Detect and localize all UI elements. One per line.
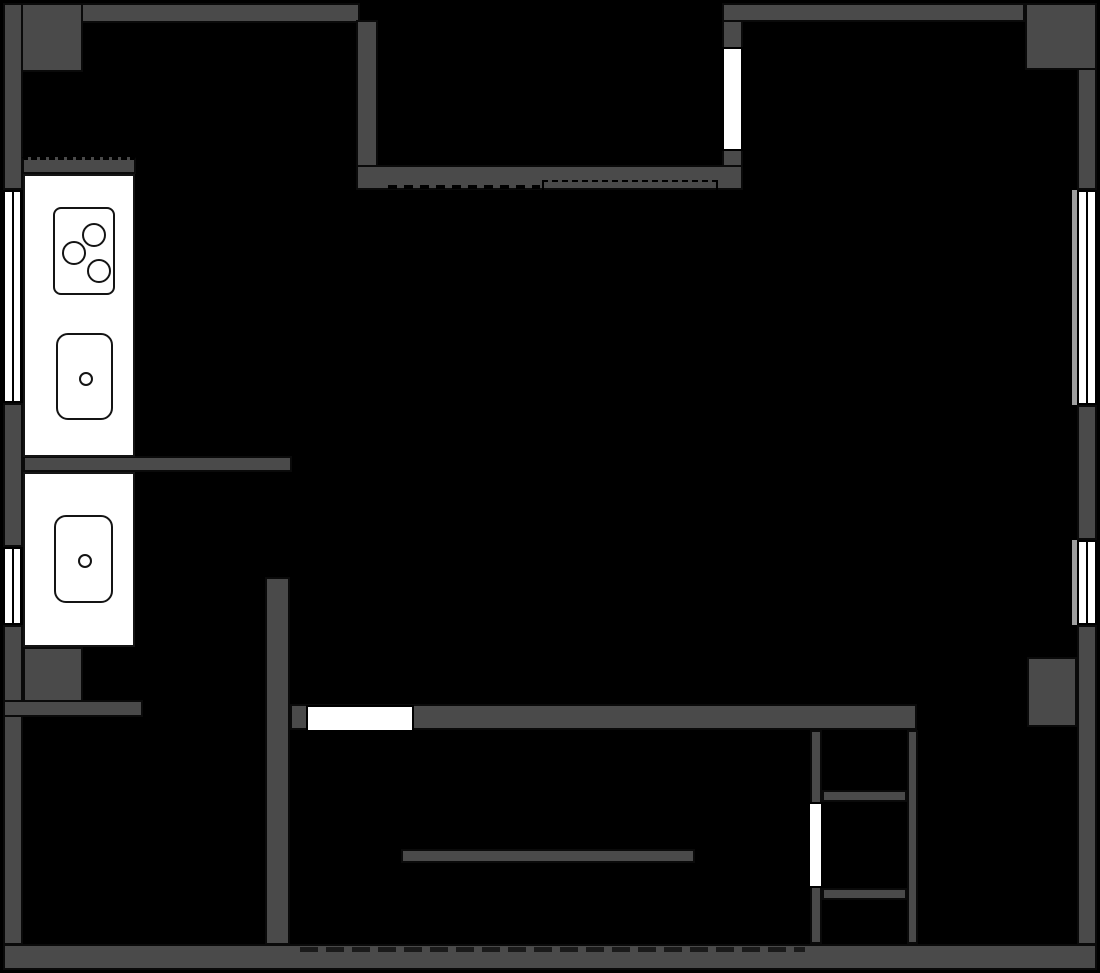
bottom-wall-dashed-line [300, 947, 805, 952]
right-window-upper-pane-divider [1086, 192, 1088, 403]
right-window-lower-pane-divider [1086, 542, 1088, 623]
kitchen-sink-upper [56, 333, 113, 420]
stove [53, 207, 115, 295]
recess-left-wall [356, 20, 378, 167]
right-window-lower [1077, 540, 1097, 625]
left-wall-lower [3, 625, 23, 945]
sink-drain [79, 372, 93, 386]
burner [62, 241, 86, 265]
sink-drain [78, 554, 92, 568]
left-wall-upper [3, 3, 23, 190]
kitchen-partition-stub [23, 456, 292, 472]
top-window [722, 47, 743, 151]
apartment-floor-plan [0, 0, 1100, 973]
top-wall-right [722, 3, 1025, 22]
hall-door-opening [306, 705, 414, 732]
left-window-lower-pane-divider [12, 549, 14, 623]
kitchen-sink-lower [54, 515, 113, 603]
left-window-lower [3, 547, 22, 625]
wardrobe-dashed-outline [542, 180, 718, 192]
closet-divider-lower [822, 888, 907, 900]
counter-backsplash [22, 157, 136, 174]
table-bar [401, 849, 695, 863]
right-wall-upper [1077, 68, 1097, 190]
right-wall-lower [1077, 625, 1097, 945]
right-wall-bump [1027, 657, 1077, 727]
left-window-upper-pane-divider [12, 192, 14, 401]
closet-divider-upper [822, 790, 907, 802]
recess-dashed-line [388, 185, 540, 189]
central-divider-wall [265, 577, 290, 945]
burner [82, 223, 106, 247]
right-window-upper [1077, 190, 1097, 405]
closet-door-opening [808, 802, 823, 888]
right-wall-middle [1077, 405, 1097, 540]
left-window-upper [3, 190, 22, 403]
lower-left-room-top-wall [3, 700, 143, 717]
closet-right-wall [907, 730, 918, 944]
left-wall-middle [3, 403, 23, 547]
top-right-corner-block [1025, 3, 1097, 70]
burner [87, 259, 111, 283]
